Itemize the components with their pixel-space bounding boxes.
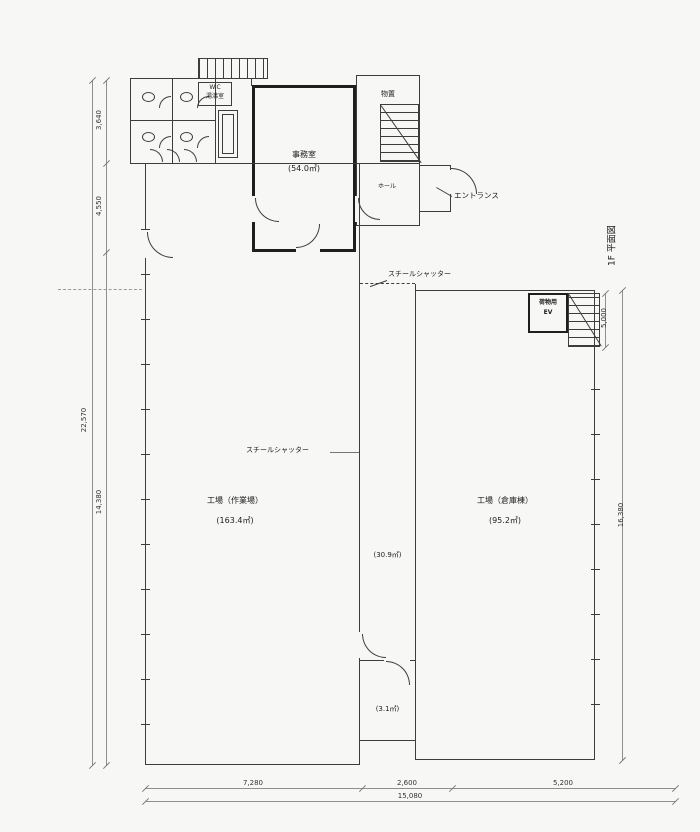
wall <box>130 78 131 164</box>
door-arc <box>159 136 171 148</box>
steel-shutter-opening <box>360 283 415 284</box>
dimension-tick <box>602 344 609 351</box>
section-cut-line <box>58 289 142 290</box>
steel-shutter-top-label: スチールシャッター <box>388 270 451 279</box>
dimension-tick <box>619 757 626 764</box>
dim-left-total: 22,570 <box>80 402 88 438</box>
dimension-tick <box>672 785 679 792</box>
door-arc <box>362 634 386 658</box>
corridor-area: (30.9㎡) <box>361 551 414 560</box>
plan-title: 1F 平面図 <box>607 210 618 282</box>
dim-bottom-2: 2,600 <box>385 779 429 787</box>
dim-bottom-1: 7,280 <box>231 779 275 787</box>
toilet-fixture <box>180 92 193 102</box>
leader-line <box>330 452 360 453</box>
dimension-line <box>145 801 675 802</box>
exterior-stairs <box>198 58 268 79</box>
warehouse-area: (95.2㎡) <box>425 516 585 526</box>
wall <box>356 225 420 226</box>
dim-left-2: 4,550 <box>95 188 103 224</box>
wall <box>356 75 420 76</box>
floor-plan-sheet: W.C 湯沸室 事務室 (54.0㎡) 物置 ホール エントランス <box>0 0 700 832</box>
wc-label: W.C <box>198 84 232 92</box>
window-ticks <box>141 185 150 745</box>
hall-name: ホール <box>362 183 412 191</box>
wall <box>360 740 416 741</box>
kitchenette-label: 湯沸室 <box>198 93 232 101</box>
dimension-line <box>92 80 93 766</box>
dimension-line <box>145 788 675 789</box>
workshop-area: (163.4㎡) <box>175 516 295 526</box>
toilet-fixture <box>142 132 155 142</box>
steel-shutter-mid-label: スチールシャッター <box>246 446 309 455</box>
workshop-name: 工場（作業場） <box>175 496 295 506</box>
wall <box>356 163 420 164</box>
dim-left-1: 3,640 <box>95 102 103 138</box>
wall <box>419 165 451 166</box>
toilet-fixture <box>180 132 193 142</box>
door-arc <box>386 661 410 685</box>
entrance-label: エントランス <box>454 191 499 200</box>
sink-basin <box>222 114 234 154</box>
dimension-tick <box>103 762 110 769</box>
door-arc <box>184 149 197 162</box>
dim-bottom-total: 15,080 <box>388 792 432 800</box>
workshop-room <box>145 163 360 765</box>
dim-right-total: 16,380 <box>617 497 625 533</box>
door-arc <box>150 149 163 162</box>
dim-right-stair: 5,000 <box>600 300 608 336</box>
wall <box>130 120 215 121</box>
window-ticks <box>591 345 600 745</box>
freight-ev-label: 荷物用 <box>528 299 568 307</box>
office-name: 事務室 <box>260 150 348 160</box>
toilet-fixture <box>142 92 155 102</box>
door-arc <box>159 96 171 108</box>
freight-ev-label2: EV <box>528 309 568 317</box>
dim-left-3: 14,380 <box>95 484 103 520</box>
storage-name: 物置 <box>362 90 414 99</box>
wall <box>419 211 451 212</box>
dimension-line <box>106 80 107 766</box>
wall <box>419 75 420 226</box>
warehouse-name: 工場（倉庫棟） <box>425 496 585 506</box>
dimension-tick <box>89 762 96 769</box>
door-arc <box>167 149 180 162</box>
dim-bottom-3: 5,200 <box>541 779 585 787</box>
door-arc <box>197 136 209 148</box>
dimension-tick <box>672 798 679 805</box>
small-room-area: (3.1㎡) <box>361 705 414 714</box>
door-arc <box>358 198 380 220</box>
